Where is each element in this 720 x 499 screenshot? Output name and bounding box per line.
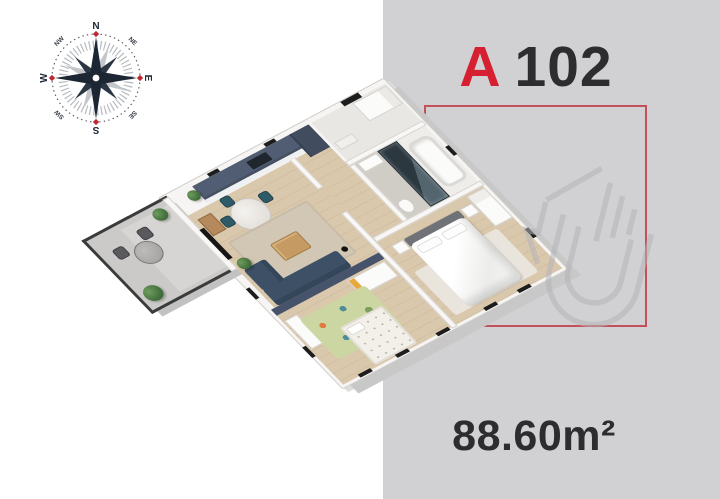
compass-label-ne: NE	[127, 36, 139, 48]
unit-number: 102	[515, 35, 613, 99]
watermark-logo-icon	[515, 163, 673, 343]
compass-label-s: S	[92, 124, 99, 135]
compass-label-sw: SW	[53, 108, 66, 121]
bistro-chair	[111, 245, 131, 260]
terrace-plant	[139, 282, 168, 304]
compass-label-nw: NW	[53, 35, 66, 48]
compass-label-w: W	[39, 73, 50, 83]
unit-label: A102	[426, 34, 646, 100]
compass-label-e: E	[142, 75, 153, 82]
watermark-logo	[515, 163, 673, 343]
unit-prefix: A	[459, 35, 501, 99]
compass-label-n: N	[92, 21, 99, 32]
compass-rose-icon: N S E W NE SE SW NW	[36, 18, 156, 138]
compass-label-se: SE	[126, 109, 138, 121]
area-label: 88.60m²	[420, 412, 648, 461]
compass-rose: N S E W NE SE SW NW	[36, 18, 156, 138]
